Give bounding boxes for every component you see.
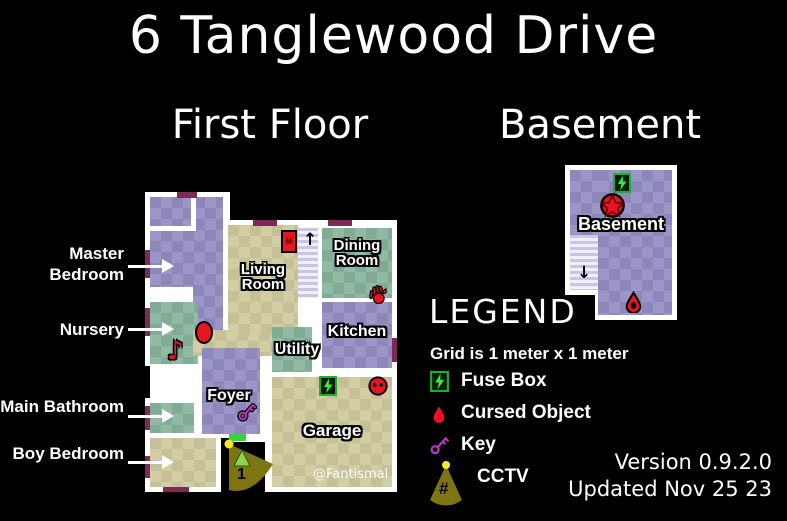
stairs-down-arrow-icon — [577, 263, 591, 283]
music-box-icon — [167, 336, 184, 366]
side-label-nursery: Nursery — [0, 319, 124, 340]
haunted-mirror-icon — [195, 321, 213, 344]
side-label-main-bathroom: Main Bathroom — [0, 396, 124, 417]
label-arrow — [128, 415, 162, 418]
basement-map: Basement — [565, 165, 677, 320]
cctv-cone-1: 1 — [221, 438, 279, 501]
living-room-label: Living Room — [230, 262, 296, 293]
legend-heading: LEGEND — [429, 292, 577, 331]
voodoo-doll-icon — [368, 376, 388, 401]
room-master-bedroom — [150, 197, 223, 287]
legend-grid-note: Grid is 1 meter x 1 meter — [430, 344, 628, 364]
cctv-icon — [424, 460, 468, 506]
legend-item-fuse-box: Fuse Box — [426, 370, 547, 392]
window-marker — [145, 250, 150, 278]
foyer-label: Foyer — [201, 388, 257, 404]
window-marker — [177, 192, 197, 198]
legend-item-key: Key — [426, 433, 496, 456]
version-text: Version 0.9.2.0 — [540, 450, 772, 474]
fuse-box-icon — [319, 376, 337, 401]
stairs-up-arrow-icon — [303, 230, 317, 250]
cursed-object-icon — [426, 403, 452, 424]
basement-label: Basement — [573, 215, 669, 233]
side-label-boy-bedroom: Boy Bedroom — [0, 443, 124, 464]
key-icon — [426, 433, 452, 456]
window-marker — [145, 456, 150, 478]
updated-text: Updated Nov 25 23 — [540, 477, 772, 501]
window-marker — [328, 220, 352, 226]
legend-item-label: Cursed Object — [461, 402, 591, 424]
label-arrow — [128, 265, 162, 268]
utility-label: Utility — [267, 342, 327, 358]
watermark: @Fantismal — [313, 467, 387, 482]
page-title: 6 Tanglewood Drive — [0, 6, 787, 66]
legend-item-label: Key — [461, 434, 496, 456]
legend-item-cctv: CCTV — [424, 460, 529, 506]
legend-item-label: CCTV — [477, 466, 529, 488]
cursed-object-icon — [625, 291, 642, 318]
garage-label: Garage — [297, 422, 367, 439]
window-marker — [163, 487, 189, 492]
window-marker — [145, 406, 150, 430]
basement-heading: Basement — [475, 102, 725, 148]
closet-wall — [150, 226, 193, 231]
window-marker — [392, 338, 397, 362]
label-arrow — [128, 461, 162, 464]
first-floor-heading: First Floor — [120, 102, 420, 148]
fuse-box-icon — [426, 371, 452, 392]
kitchen-label: Kitchen — [317, 324, 397, 340]
window-marker — [253, 220, 277, 226]
label-arrow — [128, 328, 162, 331]
window-marker — [145, 308, 150, 336]
first-floor-map: 1 Living Room Dining Room Kitchen Utilit… — [145, 190, 397, 492]
closet-wall — [191, 197, 196, 231]
side-label-master-bedroom: Master Bedroom — [0, 243, 124, 285]
exterior-notch — [145, 366, 150, 398]
dining-room-label: Dining Room — [324, 238, 390, 269]
legend-item-cursed-object: Cursed Object — [426, 402, 591, 424]
ouija-board-icon — [281, 230, 297, 253]
legend-item-label: Fuse Box — [461, 370, 547, 392]
map-poster: 6 Tanglewood Drive First Floor Basement — [0, 0, 787, 521]
cctv-camera-number: 1 — [237, 466, 246, 484]
